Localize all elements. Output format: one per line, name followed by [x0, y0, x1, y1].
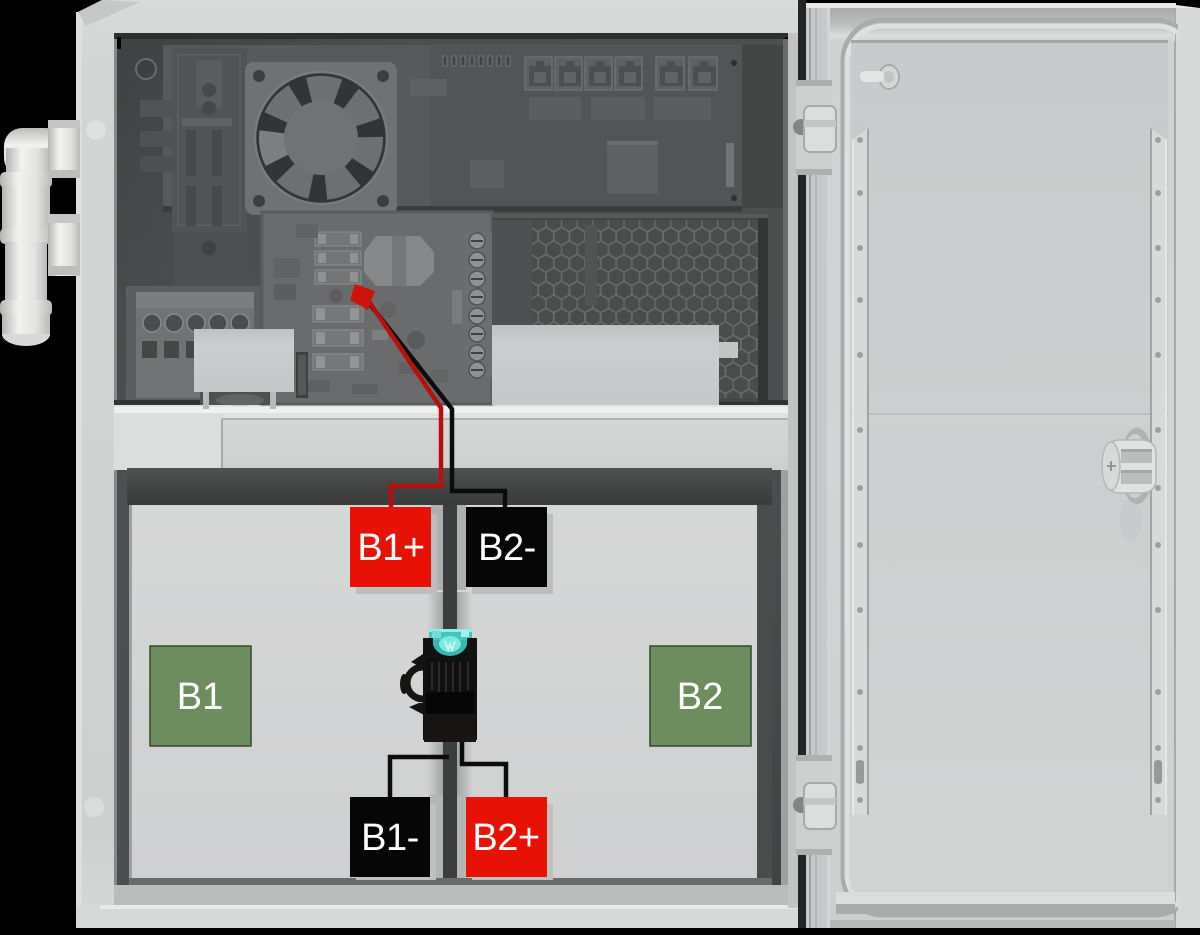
svg-text:B2: B2: [677, 676, 723, 718]
svg-text:B1-: B1-: [361, 817, 419, 859]
svg-text:B2+: B2+: [472, 817, 539, 859]
svg-text:B1: B1: [177, 676, 223, 718]
svg-text:B2-: B2-: [478, 527, 536, 569]
svg-text:B1+: B1+: [357, 527, 424, 569]
